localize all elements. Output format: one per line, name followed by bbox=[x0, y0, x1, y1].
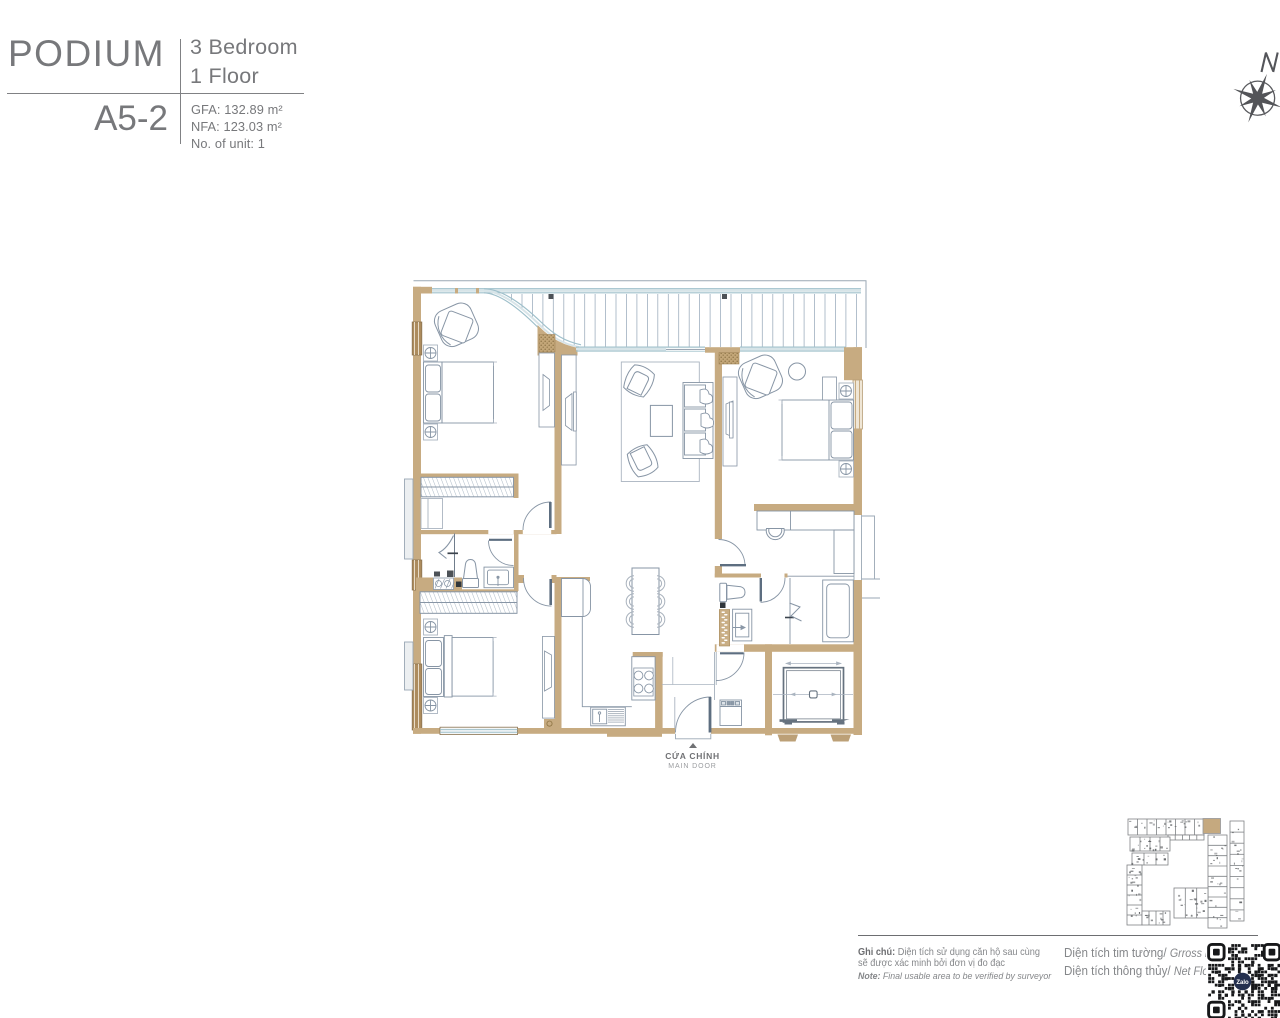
svg-text:Zalo: Zalo bbox=[1236, 980, 1249, 986]
